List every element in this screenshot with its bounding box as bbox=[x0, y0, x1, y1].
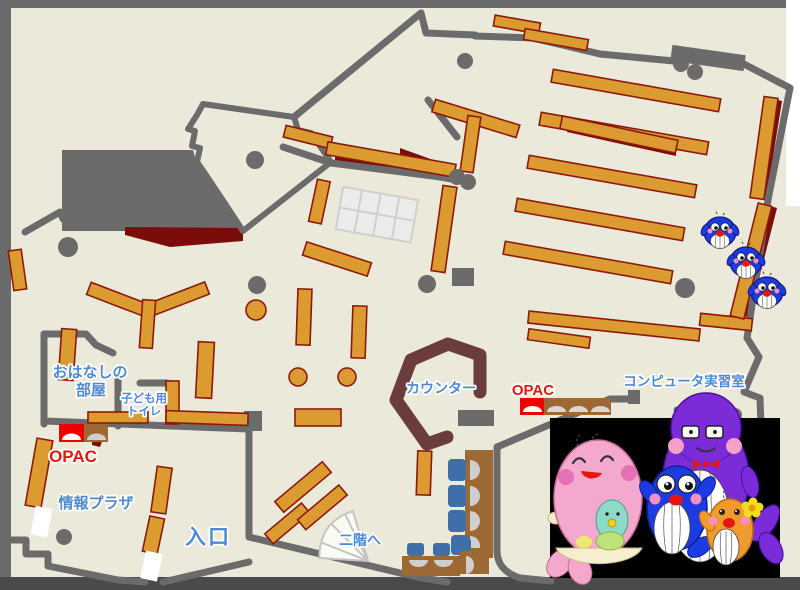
library-floor-map: おはなしの 部屋 子ども用 トイレ OPAC 情報プラザ 入口 カウンター OP… bbox=[0, 0, 800, 590]
bookshelf bbox=[166, 411, 248, 426]
opac-station-left bbox=[59, 424, 108, 442]
chair bbox=[448, 510, 466, 532]
round-table bbox=[289, 368, 307, 386]
chair bbox=[456, 538, 471, 551]
label-kids-toilet-2: トイレ bbox=[127, 405, 162, 418]
bookshelf bbox=[139, 300, 155, 349]
round-table bbox=[246, 300, 266, 320]
chair bbox=[407, 543, 424, 556]
chair bbox=[433, 543, 450, 556]
round-table bbox=[338, 368, 356, 386]
frame-top bbox=[0, 0, 786, 8]
label-storytelling-room-2: 部屋 bbox=[76, 381, 106, 399]
label-storytelling-room: おはなしの bbox=[52, 364, 127, 381]
bookshelf bbox=[351, 306, 367, 358]
bookshelf bbox=[416, 451, 432, 495]
label-counter: カウンター bbox=[406, 380, 476, 396]
bookshelf bbox=[295, 409, 341, 426]
frame-left bbox=[0, 0, 11, 590]
label-info-plaza: 情報プラザ bbox=[58, 494, 133, 512]
label-opac-left: OPAC bbox=[49, 447, 97, 466]
chair bbox=[448, 485, 466, 507]
label-kids-toilet: 子ども用 bbox=[121, 392, 167, 405]
bookshelf bbox=[296, 289, 312, 345]
label-entrance: 入口 bbox=[185, 526, 231, 549]
label-opac-right: OPAC bbox=[512, 382, 554, 399]
label-computer-room: コンピュータ実習室 bbox=[623, 373, 745, 389]
label-to-second-floor: 二階へ bbox=[339, 532, 381, 548]
chair bbox=[448, 459, 466, 481]
bookshelf bbox=[196, 342, 215, 399]
counter-side-desk bbox=[458, 410, 494, 426]
